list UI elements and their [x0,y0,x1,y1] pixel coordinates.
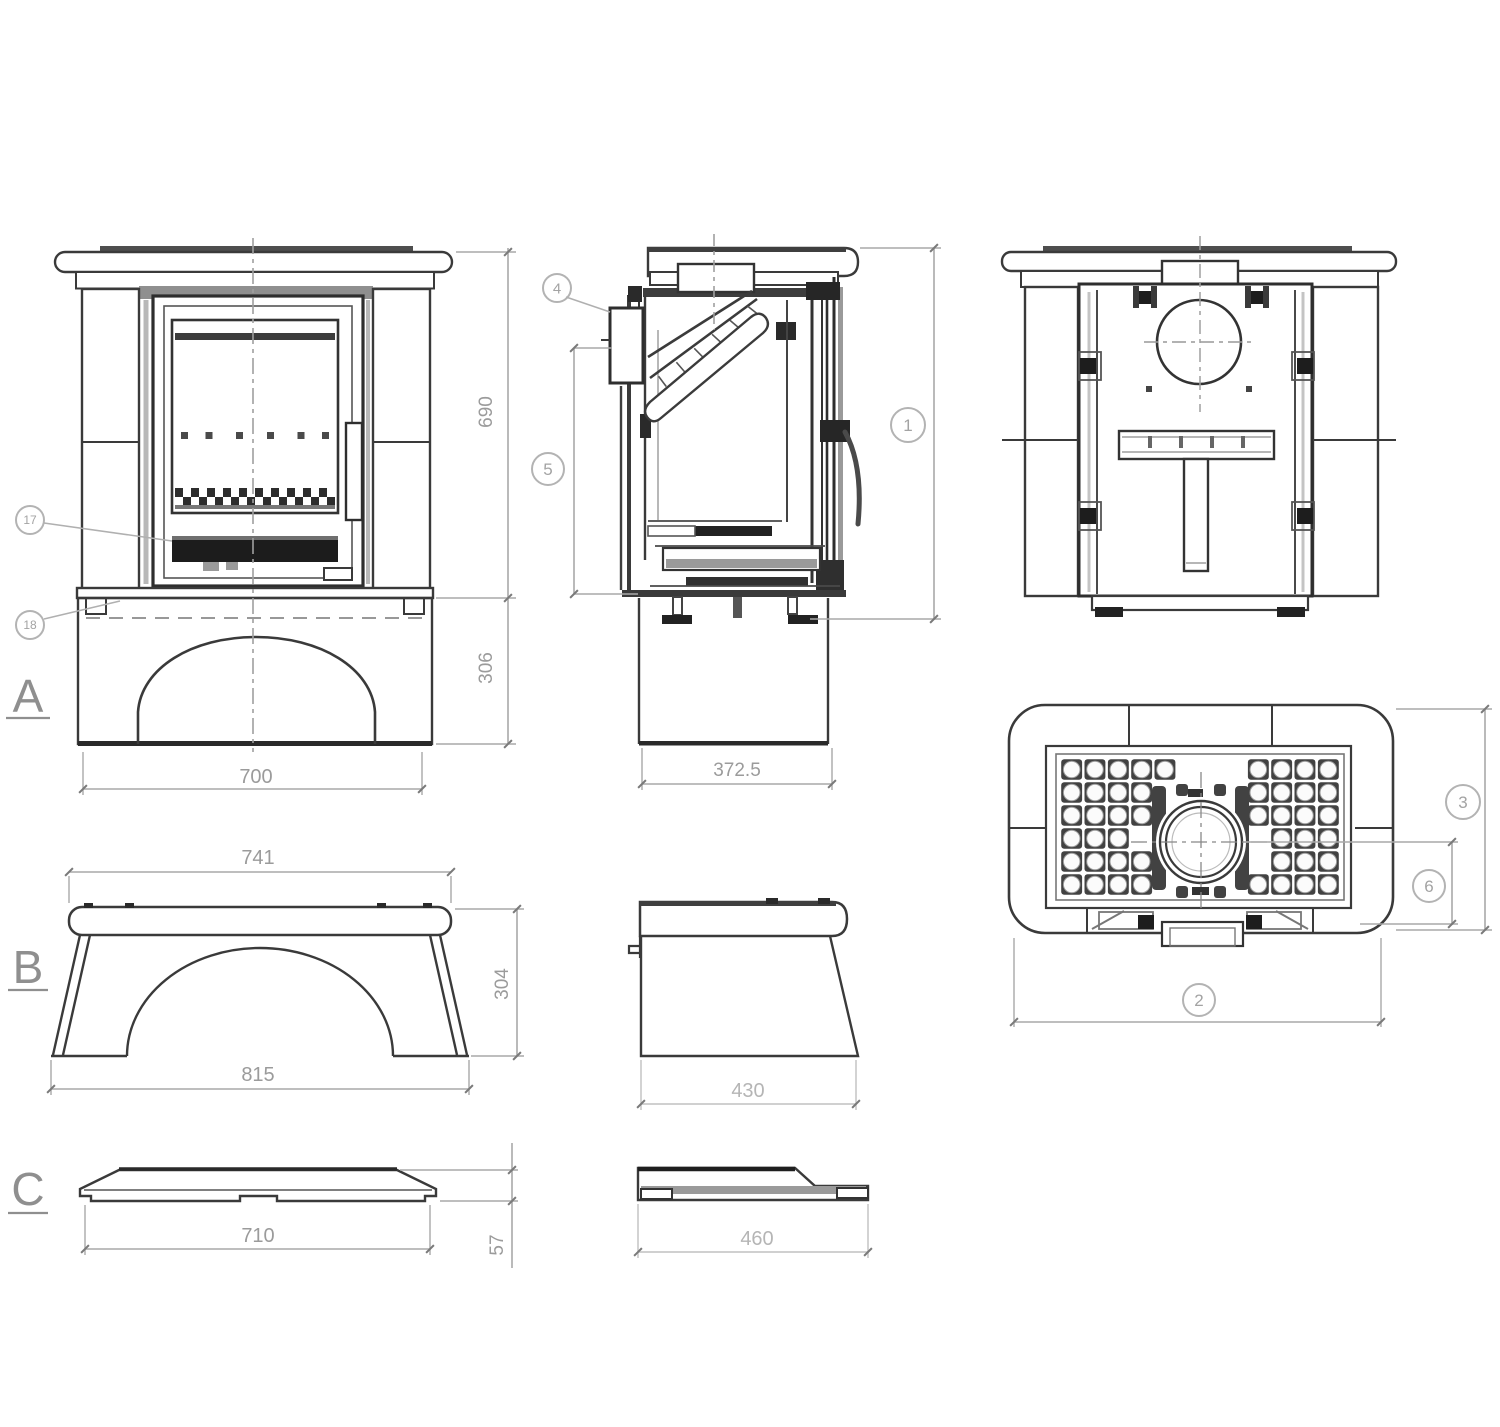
svg-text:372.5: 372.5 [713,760,761,781]
svg-text:700: 700 [239,766,272,788]
svg-text:C: C [11,1163,44,1215]
svg-text:57: 57 [487,1234,508,1255]
svg-text:741: 741 [241,847,274,869]
svg-text:2: 2 [1194,991,1203,1010]
svg-text:5: 5 [543,460,552,479]
svg-text:304: 304 [492,968,513,1000]
svg-text:6: 6 [1424,877,1433,896]
svg-text:306: 306 [476,652,497,684]
svg-text:430: 430 [731,1080,764,1102]
svg-text:A: A [13,670,44,722]
svg-text:690: 690 [476,396,497,428]
svg-text:4: 4 [553,280,561,297]
svg-text:B: B [13,941,44,993]
svg-text:3: 3 [1458,793,1467,812]
svg-text:710: 710 [241,1225,274,1247]
svg-text:18: 18 [23,618,37,632]
svg-text:815: 815 [241,1064,274,1086]
svg-text:1: 1 [903,416,912,435]
svg-text:460: 460 [740,1228,773,1250]
svg-text:17: 17 [23,513,37,527]
